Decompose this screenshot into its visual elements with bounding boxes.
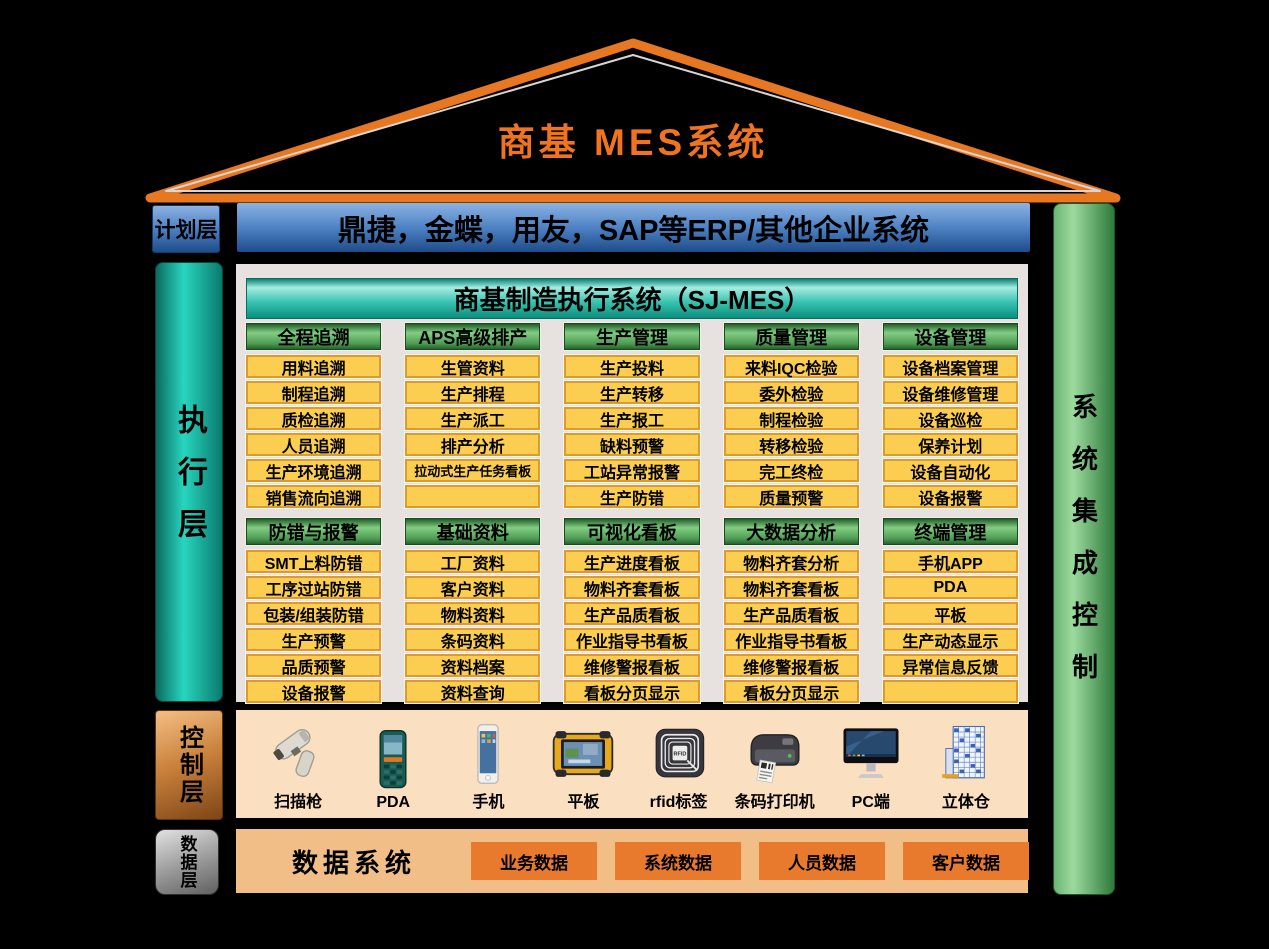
- module-item: 资料查询: [405, 680, 540, 703]
- module-item: 物料资料: [405, 602, 540, 625]
- module-item: 生产品质看板: [564, 602, 699, 625]
- module-group-title: 质量管理: [724, 323, 859, 350]
- mes-architecture-diagram: 商基 MES系统 计划层 执行层 控制层 数据层 鼎捷，金蝶，用友，SAP等ER…: [0, 0, 1269, 949]
- module-item: 生产防错: [564, 485, 699, 508]
- module-item: 生管资料: [405, 355, 540, 378]
- device-label: 扫描枪: [274, 788, 322, 812]
- device-item: 立体仓: [927, 721, 1005, 812]
- module-item: 设备档案管理: [883, 355, 1018, 378]
- data-box: 人员数据: [759, 842, 885, 880]
- rfid-tag-icon: RFID: [640, 721, 718, 787]
- module-item: 来料IQC检验: [724, 355, 859, 378]
- module-item: [883, 680, 1018, 703]
- module-item: 物料齐套看板: [564, 576, 699, 599]
- system-integration-bar: 系统集成控制: [1053, 203, 1115, 895]
- module-group: 基础资料工厂资料客户资料物料资料条码资料资料档案资料查询: [405, 518, 540, 703]
- module-group-title: 基础资料: [405, 518, 540, 545]
- module-group: 大数据分析物料齐套分析物料齐套看板生产品质看板作业指导书看板维修警报看板看板分页…: [724, 518, 859, 703]
- diagram-title: 商基 MES系统: [498, 112, 768, 166]
- mes-panel: 商基制造执行系统（SJ-MES） 全程追溯用料追溯制程追溯质检追溯人员追溯生产环…: [236, 264, 1028, 702]
- module-item: 设备巡检: [883, 407, 1018, 430]
- module-item: 生产报工: [564, 407, 699, 430]
- module-item: [405, 485, 540, 508]
- control-layer-label: 控制层: [155, 710, 223, 820]
- module-item: 排产分析: [405, 433, 540, 456]
- device-item: RFIDrfid标签: [640, 721, 718, 812]
- pda-icon: [354, 727, 432, 793]
- device-item: 条码打印机: [735, 721, 815, 812]
- module-item: 人员追溯: [246, 433, 381, 456]
- module-item: 制程检验: [724, 407, 859, 430]
- module-item: 生产转移: [564, 381, 699, 404]
- module-item: 生产品质看板: [724, 602, 859, 625]
- control-devices-bar: 扫描枪 PDA 手机 平板 RFIDrfid标签 条码打印机 PC端: [236, 710, 1028, 818]
- mes-panel-header: 商基制造执行系统（SJ-MES）: [246, 278, 1018, 319]
- module-group-title: APS高级排产: [405, 323, 540, 350]
- data-systems-bar: 数据系统 业务数据系统数据人员数据客户数据: [236, 829, 1028, 893]
- module-item: 生产派工: [405, 407, 540, 430]
- module-item: 生产动态显示: [883, 628, 1018, 651]
- module-item: 保养计划: [883, 433, 1018, 456]
- module-item: 质量预警: [724, 485, 859, 508]
- module-group: 防错与报警SMT上料防错工序过站防错包装/组装防错生产预警品质预警设备报警: [246, 518, 381, 703]
- module-item: 设备报警: [246, 680, 381, 703]
- barcode-scanner-icon: [259, 721, 337, 787]
- module-item: 生产进度看板: [564, 550, 699, 573]
- module-group-title: 大数据分析: [724, 518, 859, 545]
- module-item: 工厂资料: [405, 550, 540, 573]
- module-item: 看板分页显示: [564, 680, 699, 703]
- module-item: 生产排程: [405, 381, 540, 404]
- module-item: 条码资料: [405, 628, 540, 651]
- data-boxes: 业务数据系统数据人员数据客户数据: [471, 842, 1029, 880]
- module-item: 设备维修管理: [883, 381, 1018, 404]
- module-group: 设备管理设备档案管理设备维修管理设备巡检保养计划设备自动化设备报警: [883, 323, 1018, 508]
- erp-systems-bar: 鼎捷，金蝶，用友，SAP等ERP/其他企业系统: [237, 203, 1030, 252]
- module-item: 生产环境追溯: [246, 459, 381, 482]
- data-layer-label: 数据层: [155, 829, 219, 895]
- module-item: 生产预警: [246, 628, 381, 651]
- stereo-warehouse-icon: [927, 721, 1005, 787]
- device-label: PC端: [852, 788, 890, 812]
- module-item: 资料档案: [405, 654, 540, 677]
- module-item: 生产投料: [564, 355, 699, 378]
- module-item: 转移检验: [724, 433, 859, 456]
- module-item: 制程追溯: [246, 381, 381, 404]
- module-group: 生产管理生产投料生产转移生产报工缺料预警工站异常报警生产防错: [564, 323, 699, 508]
- planning-layer-label: 计划层: [152, 205, 220, 253]
- module-group-title: 终端管理: [883, 518, 1018, 545]
- module-item: 平板: [883, 602, 1018, 625]
- module-group: 终端管理手机APPPDA平板生产动态显示异常信息反馈: [883, 518, 1018, 703]
- roof-outline: [0, 0, 1269, 215]
- module-item: 手机APP: [883, 550, 1018, 573]
- module-groups-row-1: 全程追溯用料追溯制程追溯质检追溯人员追溯生产环境追溯销售流向追溯APS高级排产生…: [246, 323, 1018, 508]
- module-item: 物料齐套分析: [724, 550, 859, 573]
- device-item: 手机: [449, 721, 527, 812]
- device-label: 立体仓: [942, 788, 990, 812]
- module-group-title: 可视化看板: [564, 518, 699, 545]
- module-group: 全程追溯用料追溯制程追溯质检追溯人员追溯生产环境追溯销售流向追溯: [246, 323, 381, 508]
- module-group: APS高级排产生管资料生产排程生产派工排产分析拉动式生产任务看板: [405, 323, 540, 508]
- device-label: 条码打印机: [735, 788, 815, 812]
- data-box: 客户数据: [903, 842, 1029, 880]
- module-item: 包装/组装防错: [246, 602, 381, 625]
- device-label: rfid标签: [650, 788, 708, 812]
- data-box: 系统数据: [615, 842, 741, 880]
- device-label: 手机: [472, 788, 504, 812]
- module-item: 用料追溯: [246, 355, 381, 378]
- device-item: PDA: [354, 727, 432, 812]
- data-box: 业务数据: [471, 842, 597, 880]
- module-item: 看板分页显示: [724, 680, 859, 703]
- barcode-printer-icon: [736, 721, 814, 787]
- module-item: 设备报警: [883, 485, 1018, 508]
- module-item: PDA: [883, 576, 1018, 599]
- rugged-tablet-icon: [544, 721, 622, 787]
- device-item: 扫描枪: [259, 721, 337, 812]
- module-item: SMT上料防错: [246, 550, 381, 573]
- module-item: 客户资料: [405, 576, 540, 599]
- device-item: PC端: [832, 721, 910, 812]
- module-item: 工站异常报警: [564, 459, 699, 482]
- data-system-title: 数据系统: [292, 843, 416, 880]
- module-item: 缺料预警: [564, 433, 699, 456]
- module-group-title: 防错与报警: [246, 518, 381, 545]
- execution-layer-label: 执行层: [155, 262, 223, 702]
- module-item: 物料齐套看板: [724, 576, 859, 599]
- smartphone-icon: [449, 721, 527, 787]
- module-item: 作业指导书看板: [724, 628, 859, 651]
- module-item: 质检追溯: [246, 407, 381, 430]
- device-item: 平板: [544, 721, 622, 812]
- module-item: 异常信息反馈: [883, 654, 1018, 677]
- module-item: 作业指导书看板: [564, 628, 699, 651]
- module-item: 委外检验: [724, 381, 859, 404]
- module-item: 销售流向追溯: [246, 485, 381, 508]
- module-item: 维修警报看板: [724, 654, 859, 677]
- module-group: 可视化看板生产进度看板物料齐套看板生产品质看板作业指导书看板维修警报看板看板分页…: [564, 518, 699, 703]
- pc-monitor-icon: [832, 721, 910, 787]
- module-item: 完工终检: [724, 459, 859, 482]
- module-item: 拉动式生产任务看板: [405, 459, 540, 482]
- module-item: 工序过站防错: [246, 576, 381, 599]
- rfid-chip-text: RFID: [673, 751, 686, 757]
- module-groups-row-2: 防错与报警SMT上料防错工序过站防错包装/组装防错生产预警品质预警设备报警基础资…: [246, 518, 1018, 703]
- module-group-title: 设备管理: [883, 323, 1018, 350]
- module-item: 品质预警: [246, 654, 381, 677]
- module-item: 维修警报看板: [564, 654, 699, 677]
- device-label: PDA: [376, 794, 410, 812]
- device-label: 平板: [567, 788, 599, 812]
- module-group-title: 全程追溯: [246, 323, 381, 350]
- module-item: 设备自动化: [883, 459, 1018, 482]
- module-group: 质量管理来料IQC检验委外检验制程检验转移检验完工终检质量预警: [724, 323, 859, 508]
- module-group-title: 生产管理: [564, 323, 699, 350]
